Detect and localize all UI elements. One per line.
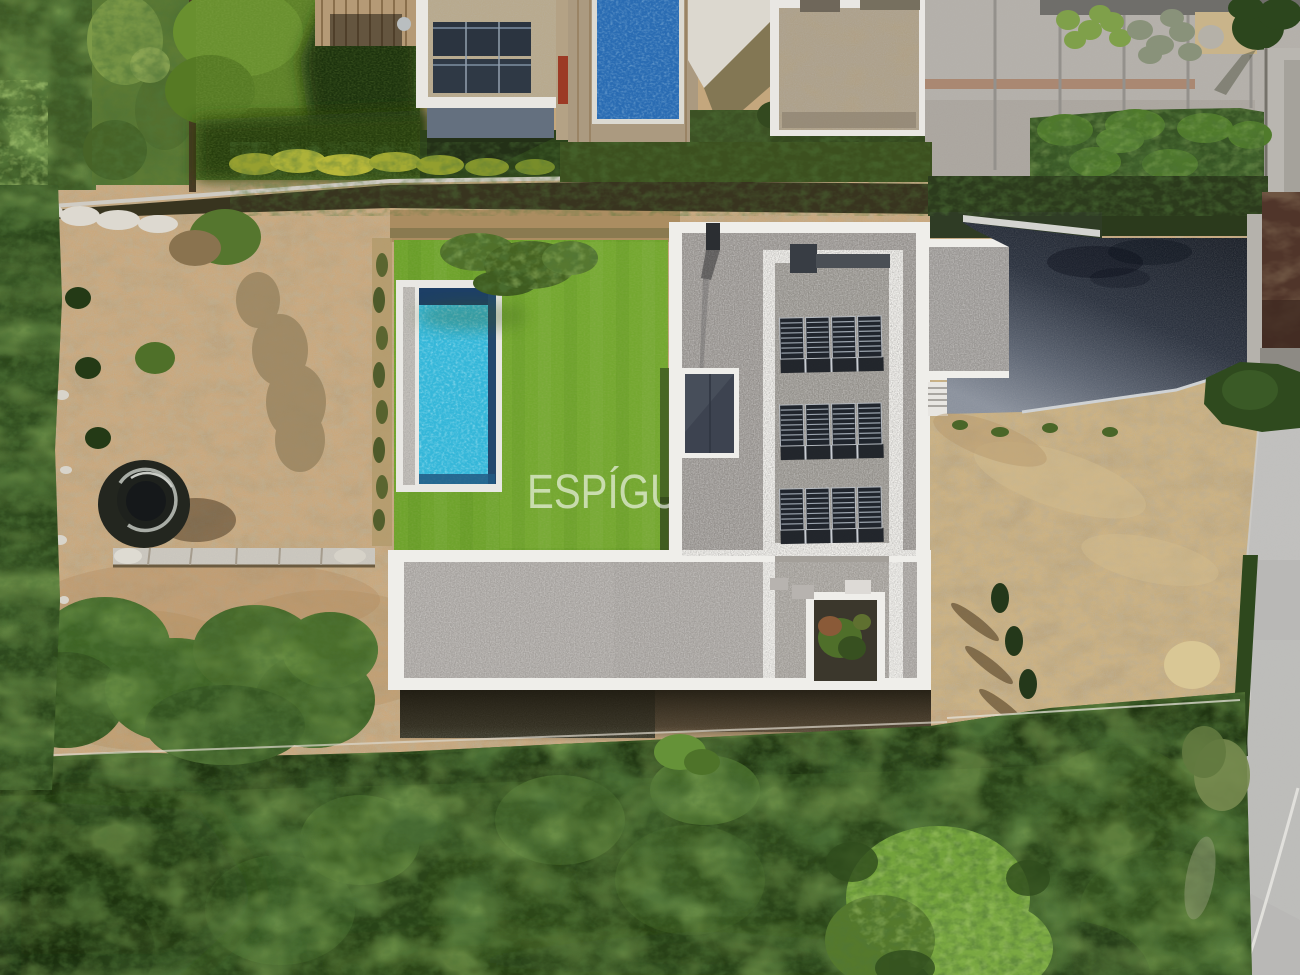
svg-text:ESPÍGU: ESPÍGU <box>527 466 679 519</box>
